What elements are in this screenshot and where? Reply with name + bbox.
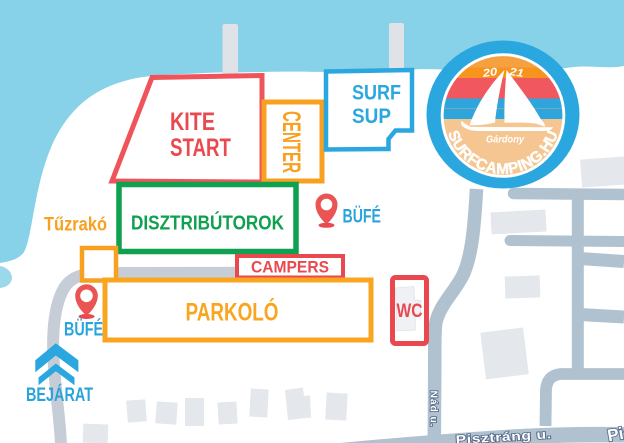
svg-text:BÜFÉ: BÜFÉ — [343, 205, 382, 228]
svg-text:PARKOLÓ: PARKOLÓ — [186, 297, 279, 327]
svg-text:KITE: KITE — [170, 108, 215, 136]
svg-text:21: 21 — [507, 66, 524, 80]
svg-text:SUP: SUP — [352, 104, 391, 128]
svg-text:CAMPERS: CAMPERS — [251, 258, 329, 277]
svg-text:20: 20 — [481, 66, 499, 80]
svg-text:CENTER: CENTER — [277, 111, 305, 173]
svg-text:Gárdony: Gárdony — [486, 134, 525, 145]
svg-text:SURF: SURF — [352, 81, 401, 105]
svg-text:START: START — [170, 134, 231, 162]
svg-text:DISZTRIBÚTOROK: DISZTRIBÚTOROK — [131, 211, 284, 235]
svg-text:WC: WC — [397, 301, 423, 322]
svg-text:Tűzrakó: Tűzrakó — [44, 215, 107, 236]
svg-text:BEJÁRAT: BEJÁRAT — [26, 384, 93, 406]
svg-text:BÜFÉ: BÜFÉ — [64, 318, 103, 341]
svg-text:Pis: Pis — [606, 422, 624, 443]
svg-text:Nád u.: Nád u. — [428, 391, 440, 428]
